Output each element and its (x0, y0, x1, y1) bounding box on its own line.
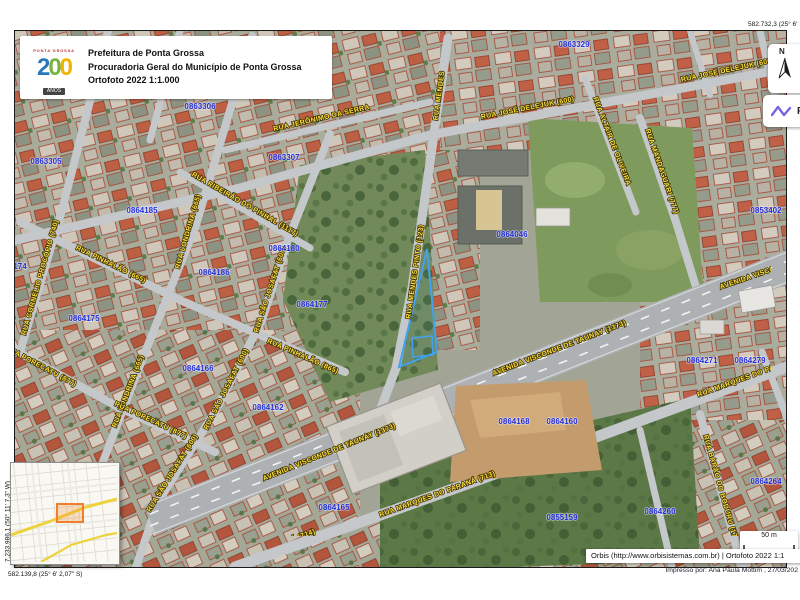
parcel-id-label: 0864162 (252, 403, 284, 412)
parcel-id-label: 0864168 (498, 417, 530, 426)
parcel-id-label: 0864160 (546, 417, 578, 426)
parcel-id-label: 0863307 (268, 153, 300, 162)
north-label: N (779, 47, 800, 56)
parcel-id-label: 0864177 (296, 300, 328, 309)
parcel-id-label: 0864185 (126, 206, 158, 215)
ponta-grossa-200-logo: PONTA GROSSA 200 ANOS (20, 40, 88, 96)
map-title-card: PONTA GROSSA 200 ANOS Prefeitura de Pont… (20, 36, 332, 99)
parcel-id-label: 0864264 (750, 477, 782, 486)
parcel-id-label: 0864279 (734, 356, 766, 365)
parcel-id-label: 0864271 (686, 356, 718, 365)
coordinate-bottom-left: 582.139,8 (25° 6' 2,07" S) (8, 571, 82, 578)
coordinate-top-right: 582.732,3 (25° 6' (748, 21, 797, 28)
parcel-id-label: 0864186 (198, 268, 230, 277)
department-title: Procuradoria Geral do Município de Ponta… (88, 61, 332, 75)
parcel-id-label: 0864166 (182, 364, 214, 373)
parcel-id-label: 0864175 (68, 314, 100, 323)
logo-anos-text: ANOS (43, 88, 65, 95)
parcel-id-label: 0863306 (184, 102, 216, 111)
credits-bar: Orbis (http://www.orbisistemas.com.br) |… (586, 549, 800, 563)
aerial-photo (15, 31, 786, 567)
parcel-id-label: 0864260 (644, 507, 676, 516)
parcel-id-label: 0863329 (558, 40, 590, 49)
logo-top-text: PONTA GROSSA (33, 48, 75, 53)
polyline-icon (770, 103, 792, 119)
route-tool-button[interactable]: R (763, 95, 800, 127)
parcel-id-label: 174 (15, 262, 27, 271)
parcel-id-label: 0855159 (546, 513, 578, 522)
credits-text: Orbis (http://www.orbisistemas.com.br) |… (591, 551, 784, 560)
map-print-page: RUA JOSÉ DELEJUK (600)RUA JOSÉ DELEJUK (… (0, 0, 800, 600)
parcel-id-label: 0864165 (318, 503, 350, 512)
map-canvas[interactable]: RUA JOSÉ DELEJUK (600)RUA JOSÉ DELEJUK (… (15, 31, 786, 567)
overview-inset-map (10, 462, 120, 565)
parcel-id-label: 0864180 (268, 244, 300, 253)
logo-200-text: 200 (37, 54, 71, 81)
parcel-id-label: 0853402 (750, 206, 782, 215)
parcel-id-label: 0864046 (496, 230, 528, 239)
printed-by-line: Impresso por: Ana Paula Mottim , 27/03/2… (520, 567, 798, 574)
scale-bar-label: 50 m (740, 532, 798, 539)
north-arrow-icon (776, 56, 794, 82)
org-title: Prefeitura de Ponta Grossa (88, 47, 332, 61)
parcel-id-label: 0863305 (30, 157, 62, 166)
north-arrow-panel: N (768, 44, 800, 93)
ortofoto-scale-line: Ortofoto 2022 1:1.000 (88, 74, 332, 88)
inset-extent-rectangle (57, 504, 83, 522)
